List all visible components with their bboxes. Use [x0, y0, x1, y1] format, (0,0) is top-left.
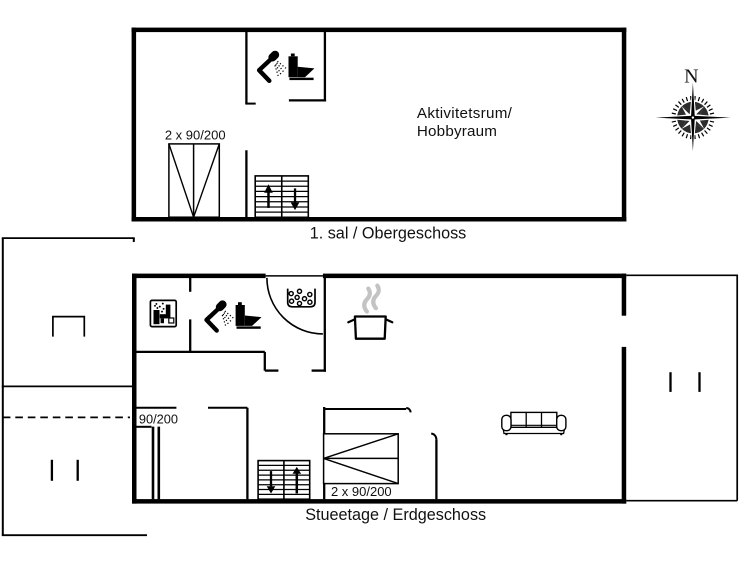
- svg-text:N: N: [684, 66, 698, 88]
- svg-text:Stueetage / Erdgeschoss: Stueetage / Erdgeschoss: [305, 506, 486, 524]
- svg-text:1. sal / Obergeschoss: 1. sal / Obergeschoss: [310, 225, 467, 243]
- svg-text:2 x 90/200: 2 x 90/200: [165, 128, 226, 143]
- svg-text:90/200: 90/200: [139, 412, 178, 427]
- svg-text:Aktivitetsrum/: Aktivitetsrum/: [417, 105, 513, 122]
- svg-text:Hobbyraum: Hobbyraum: [417, 123, 497, 140]
- svg-text:2 x 90/200: 2 x 90/200: [331, 484, 392, 499]
